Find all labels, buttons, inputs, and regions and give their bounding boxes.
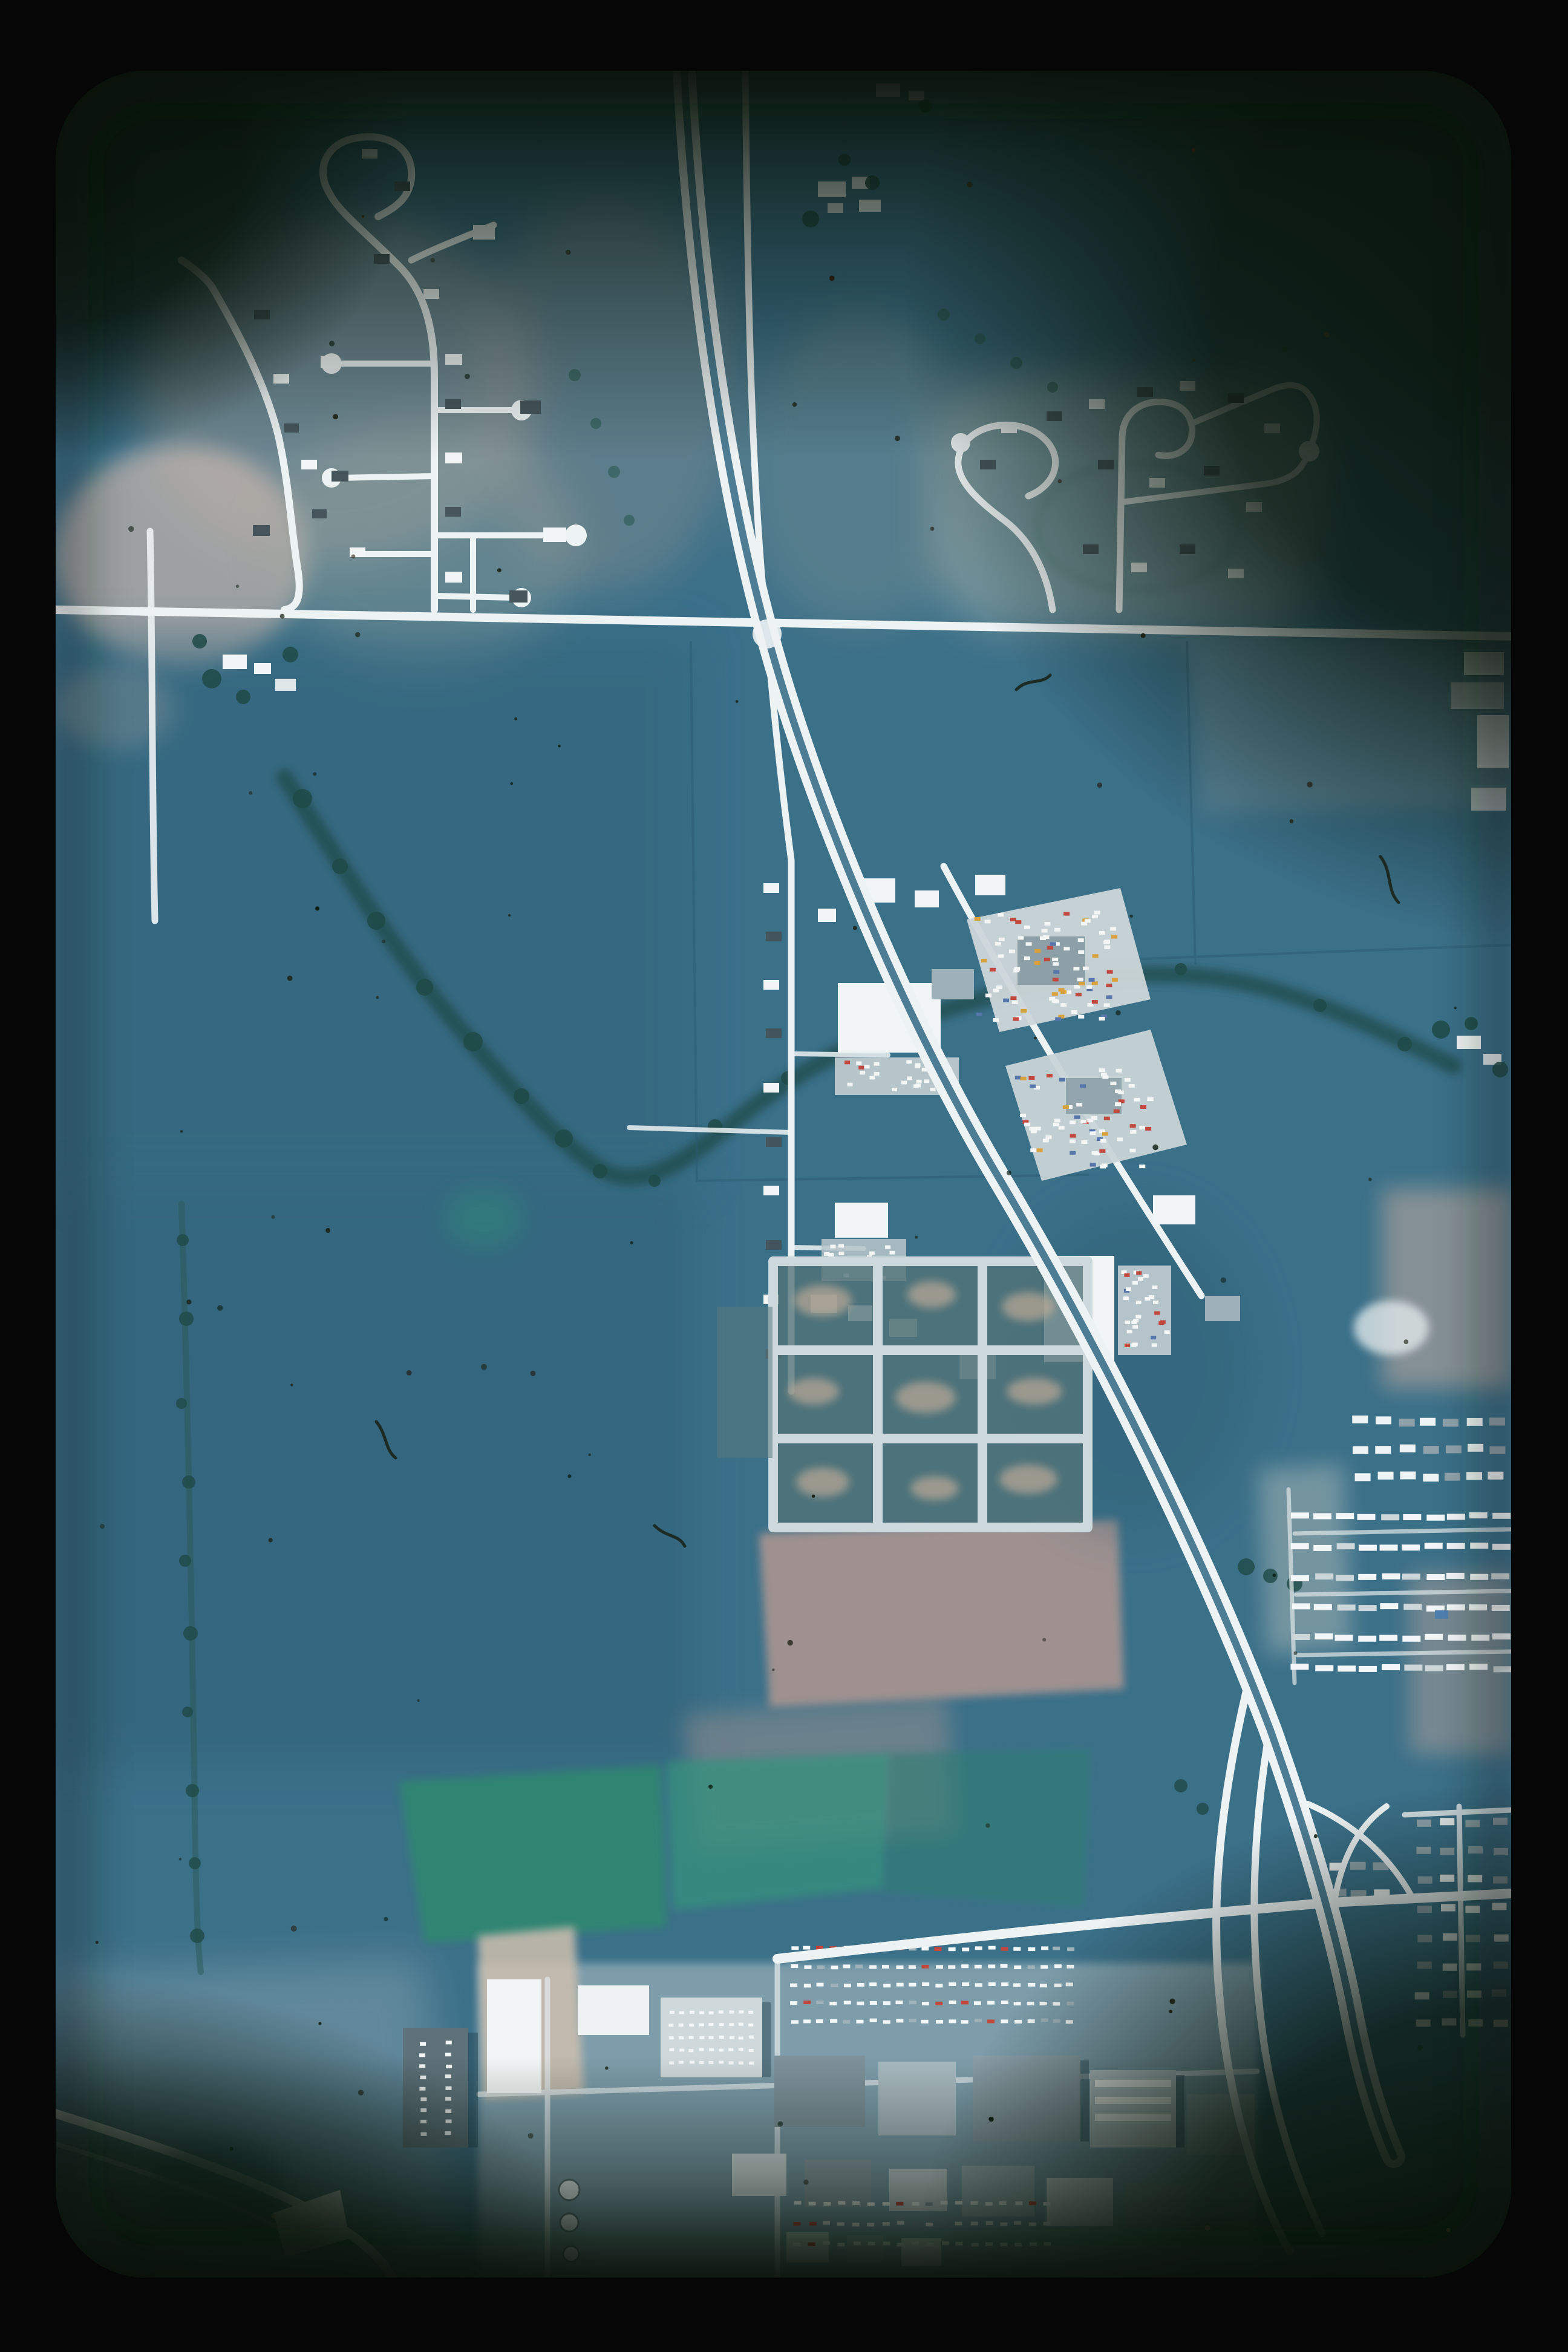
field-plowed-pink <box>759 1520 1124 1707</box>
pale-patch-near-trailers <box>1354 1301 1429 1355</box>
country-road-left <box>150 531 155 921</box>
pale-ground-trailer-west <box>1258 1464 1352 1655</box>
field-green-2 <box>667 1753 890 1910</box>
photo-emulsion <box>0 0 1568 2352</box>
highway-crossing-north <box>753 619 782 648</box>
store-east-parking <box>1118 1266 1171 1355</box>
field-green-small <box>445 1190 523 1248</box>
aerial-slide <box>0 0 1568 2352</box>
feedlot-west-stub <box>717 1307 773 1458</box>
field-green-1 <box>399 1765 667 1943</box>
field-green-3 <box>884 1749 1090 1907</box>
field-left-low <box>56 1186 697 1766</box>
trailer-park-pool <box>1435 1610 1448 1619</box>
